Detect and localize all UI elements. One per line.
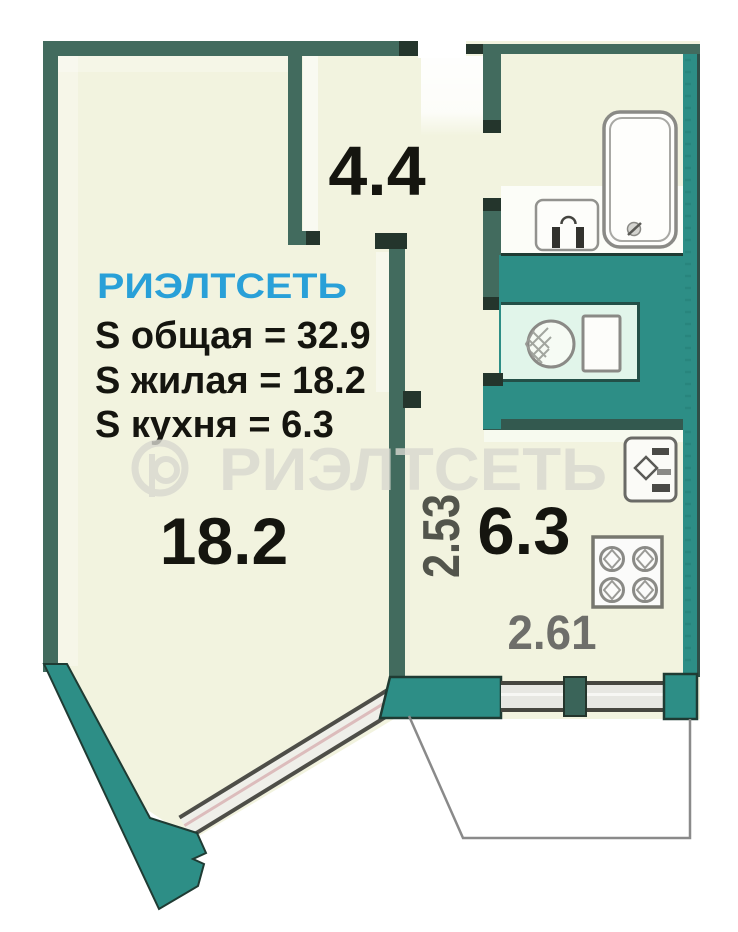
svg-text:РИЭЛТСЕТЬ: РИЭЛТСЕТЬ (219, 436, 607, 503)
svg-text:2.53: 2.53 (413, 494, 471, 578)
svg-text:S жилая = 18.2: S жилая = 18.2 (95, 360, 366, 402)
svg-text:2.61: 2.61 (508, 607, 597, 660)
svg-text:18.2: 18.2 (160, 504, 288, 578)
svg-text:6.3: 6.3 (477, 494, 570, 569)
svg-text:4.4: 4.4 (328, 132, 425, 210)
svg-text:РИЭЛТСЕТЬ: РИЭЛТСЕТЬ (97, 267, 347, 306)
svg-text:S общая = 32.9: S общая = 32.9 (95, 315, 371, 357)
